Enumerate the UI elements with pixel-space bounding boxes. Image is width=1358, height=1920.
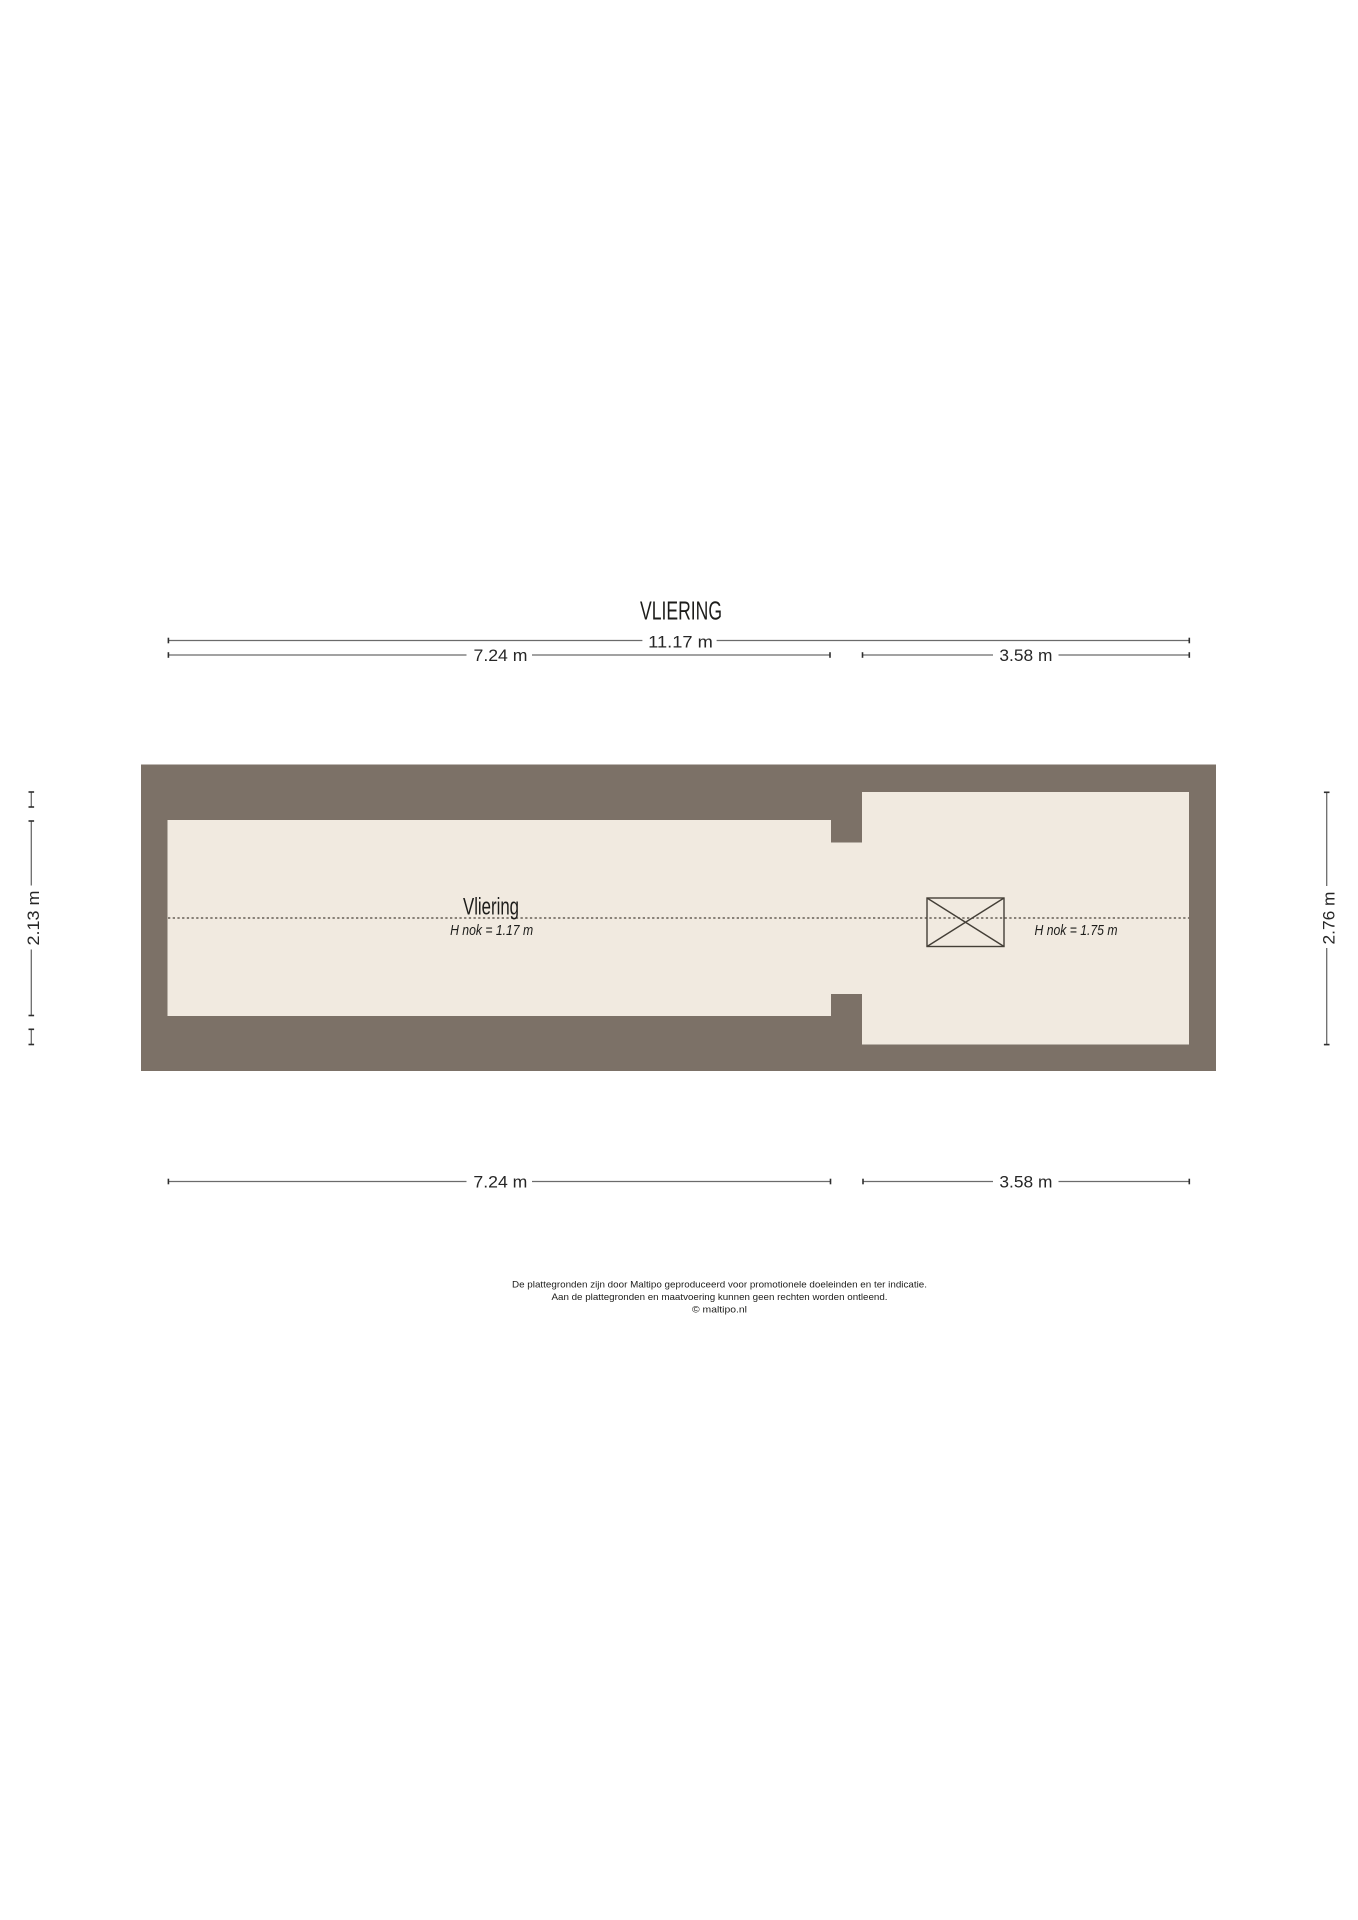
- svg-text:H nok = 1.75 m: H nok = 1.75 m: [1035, 922, 1118, 939]
- svg-text:Aan de plattegronden en maatvo: Aan de plattegronden en maatvoering kunn…: [552, 1292, 888, 1303]
- svg-text:H nok = 1.17 m: H nok = 1.17 m: [450, 922, 533, 939]
- svg-text:De plattegronden zijn door Mal: De plattegronden zijn door Maltipo gepro…: [512, 1280, 927, 1291]
- svg-text:2.13 m: 2.13 m: [24, 891, 43, 946]
- svg-text:7.24 m: 7.24 m: [474, 646, 528, 665]
- svg-text:Vliering: Vliering: [463, 894, 519, 921]
- svg-text:11.17 m: 11.17 m: [648, 632, 713, 651]
- svg-text:2.76 m: 2.76 m: [1319, 892, 1338, 945]
- svg-text:7.24 m: 7.24 m: [473, 1172, 527, 1191]
- svg-text:3.58 m: 3.58 m: [999, 646, 1052, 665]
- svg-text:© maltipo.nl: © maltipo.nl: [692, 1304, 747, 1315]
- svg-text:VLIERING: VLIERING: [640, 596, 722, 626]
- svg-text:3.58 m: 3.58 m: [999, 1172, 1052, 1191]
